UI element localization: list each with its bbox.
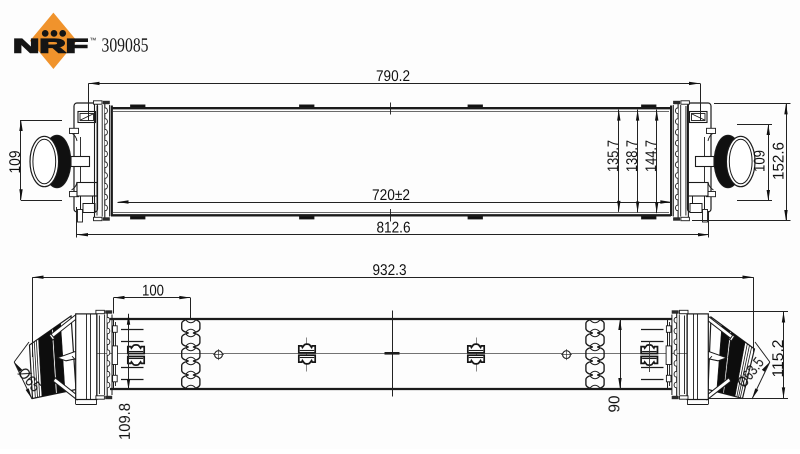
svg-text:™: ™ (90, 38, 97, 45)
svg-text:109.8: 109.8 (117, 403, 134, 440)
svg-text:144.7: 144.7 (643, 140, 660, 172)
svg-text:115.2: 115.2 (770, 340, 787, 378)
svg-text:720±2: 720±2 (372, 187, 410, 204)
svg-text:932.3: 932.3 (373, 262, 407, 279)
svg-text:90: 90 (606, 395, 623, 412)
svg-text:109: 109 (752, 150, 769, 172)
svg-text:NRF: NRF (13, 35, 88, 57)
svg-text:812.6: 812.6 (377, 219, 411, 236)
svg-text:790.2: 790.2 (376, 68, 410, 85)
svg-text:109: 109 (7, 151, 24, 174)
svg-text:138.7: 138.7 (624, 140, 641, 172)
svg-text:309085: 309085 (102, 35, 149, 57)
svg-text:135.7: 135.7 (605, 140, 622, 172)
svg-text:100: 100 (142, 282, 164, 299)
svg-text:152.6: 152.6 (771, 142, 788, 180)
